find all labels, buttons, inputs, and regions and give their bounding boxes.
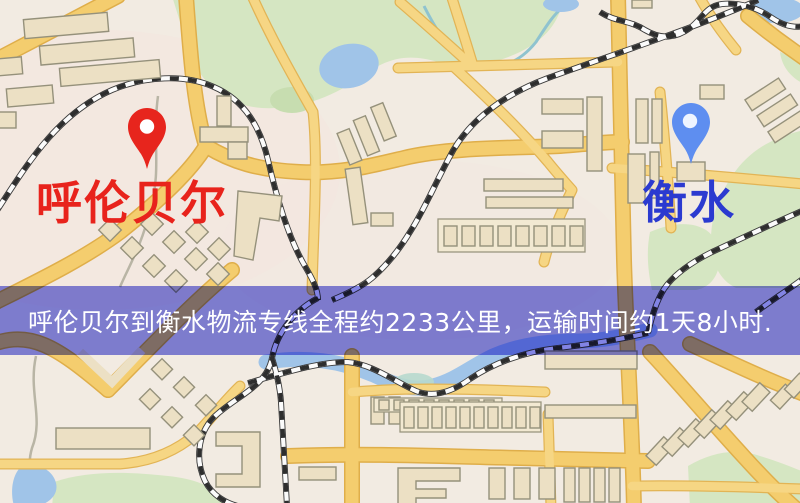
route-map: 呼伦贝尔到衡水物流专线全程约2233公里，运输时间约1天8小时. 呼伦贝尔 衡水 bbox=[0, 0, 800, 503]
map-canvas bbox=[0, 0, 800, 503]
info-banner-text: 呼伦贝尔到衡水物流专线全程约2233公里，运输时间约1天8小时. bbox=[0, 286, 800, 355]
origin-city-label: 呼伦贝尔 bbox=[36, 180, 228, 226]
destination-city-label: 衡水 bbox=[642, 180, 736, 225]
